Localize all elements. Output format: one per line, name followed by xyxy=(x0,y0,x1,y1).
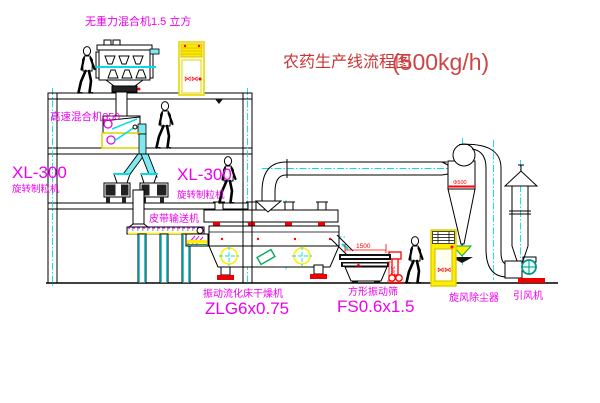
label-granulator-left-name: 旋转制粒机 xyxy=(12,183,60,195)
flow-diagram-page: ⋈⋈ xyxy=(0,0,600,403)
sieve-dim-length-label: 1500 xyxy=(356,243,371,250)
label-granulator-left-model: XL-300 xyxy=(12,163,67,182)
exhaust-stack xyxy=(505,165,537,261)
conveyor-legs xyxy=(138,234,190,283)
cabinet-symbol: ⋈⋈ xyxy=(184,76,198,83)
cyclone-dim-label: Φ500 xyxy=(453,180,467,186)
sieve-dim-height-label: 340 xyxy=(389,266,395,275)
ceiling-fixture xyxy=(215,99,223,104)
label-fan: 引风机 xyxy=(513,289,543,302)
person-roof xyxy=(79,47,95,93)
granulator-left xyxy=(104,174,130,203)
granulator-down-duct xyxy=(133,190,144,224)
control-cabinet-roof: ⋈⋈ xyxy=(179,42,204,95)
diagram-canvas: ⋈⋈ xyxy=(0,0,600,403)
fluid-bed-dryer xyxy=(204,202,339,280)
control-cabinet-ground: ⋈⋈ xyxy=(431,230,456,286)
zero-gravity-mixer xyxy=(94,40,159,116)
label-high-speed-mixer: 高速混合机350 xyxy=(50,110,120,123)
label-dryer-model: ZLG6x0.75 xyxy=(205,299,289,318)
label-granulator-right-name: 旋转制粒机 xyxy=(177,189,225,201)
label-sieve-model: FS0.6x1.5 xyxy=(337,297,415,316)
label-granulator-right-model: XL-300 xyxy=(177,165,232,184)
dryer-feed-hopper xyxy=(186,234,208,246)
square-sieve: 1500 340 xyxy=(331,235,395,284)
person-floor2 xyxy=(157,102,173,148)
cabinet-symbol: ⋈⋈ xyxy=(437,267,451,274)
person-ground xyxy=(407,237,423,283)
label-zero-gravity-mixer: 无重力混合机1.5 立方 xyxy=(85,14,191,28)
label-belt-conveyor: 皮带输送机 xyxy=(149,212,199,225)
label-cyclone: 旋风除尘器 xyxy=(449,291,499,304)
mixer-drop-chute xyxy=(139,134,146,155)
induced-draft-fan xyxy=(486,249,545,283)
diagram-title-capacity: (500kg/h) xyxy=(392,49,489,75)
mixer-inlet-stub xyxy=(150,49,159,54)
